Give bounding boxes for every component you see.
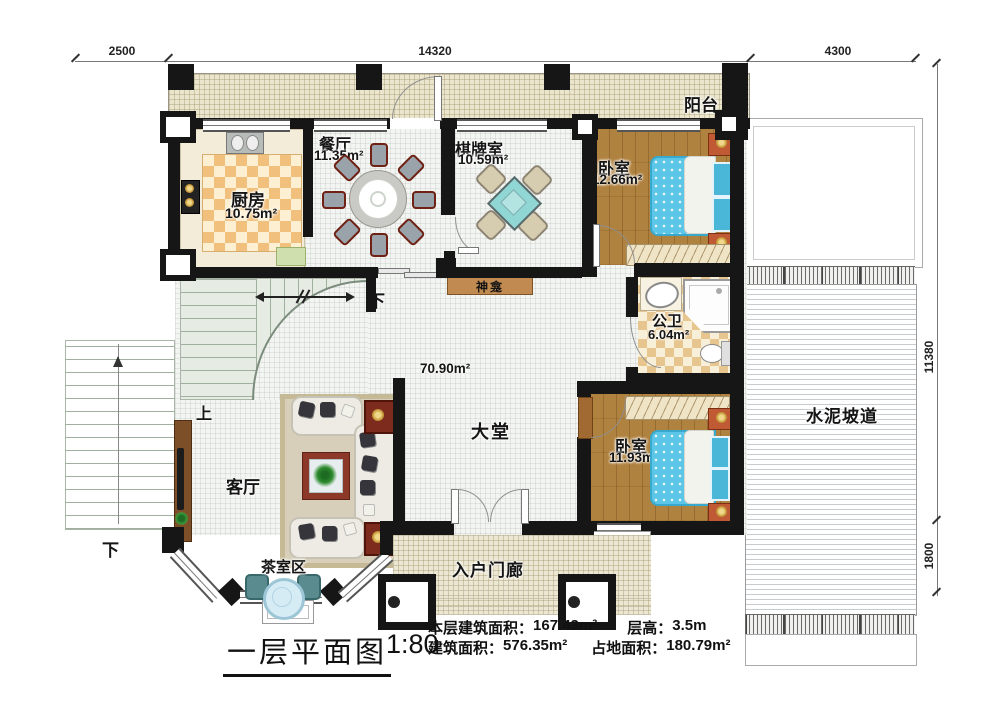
wall-exterior-right — [730, 118, 744, 533]
room-area-game-room: 10.59m² — [458, 152, 508, 167]
footer-stats-line2: 建筑面积： 576.35m² 占地面积： 180.79m² — [428, 637, 730, 658]
wall-bedroom-bottom-left — [577, 381, 591, 397]
exterior-stair-centerline — [118, 344, 119, 524]
bed-headboard — [712, 162, 732, 197]
fence-upper — [745, 266, 915, 286]
dining-chair — [370, 233, 388, 257]
wall-bedroom-bottom-left — [577, 437, 591, 533]
window-bedroom-top — [617, 119, 700, 132]
corner-column — [160, 111, 196, 143]
story-height-value: 3.5m — [672, 617, 706, 638]
window-dining — [314, 119, 387, 132]
bed-headboard — [710, 436, 730, 469]
stair-down-label-outer: 下 — [102, 536, 119, 561]
footprint-label: 占地面积： — [591, 637, 666, 658]
dining-chair — [370, 143, 388, 167]
wall-hall-living — [393, 378, 405, 521]
room-label-tea-area: 茶室区 — [261, 556, 306, 577]
exterior-stair — [65, 340, 175, 530]
tea-table-ring — [272, 587, 292, 607]
room-area-bedroom-top: 12.66m² — [592, 172, 642, 187]
dimension-top-right: 4300 — [806, 44, 870, 58]
door-leaf — [434, 76, 442, 121]
door-opening-balcony — [390, 118, 440, 129]
side-table-lamp — [372, 409, 384, 421]
door-leaf — [458, 247, 479, 254]
wall-stair-stub — [366, 278, 376, 312]
wall-gameroom-bottom — [441, 267, 582, 278]
corner-column — [572, 114, 598, 140]
dimension-line-top — [75, 61, 916, 62]
footer-stats-line1: 本层建筑面积： 167.43m² 层高： 3.5m — [428, 617, 706, 638]
dining-chair — [322, 191, 346, 209]
stair-arrow — [346, 292, 355, 302]
room-label-living-room: 客厅 — [226, 473, 260, 498]
sliding-door-leaf — [404, 272, 438, 278]
ramp-bottom-strip — [745, 634, 917, 666]
room-area-kitchen: 10.75m² — [225, 205, 277, 221]
porch-column-base — [568, 596, 580, 608]
spacer — [567, 637, 591, 658]
floor-area-value: 167.43m² — [533, 617, 597, 638]
sofa-cushion — [360, 480, 375, 495]
balcony-column — [544, 64, 570, 90]
gross-area-label: 建筑面积： — [428, 637, 503, 658]
gross-area-value: 576.35m² — [503, 637, 567, 658]
corner-column-notch — [722, 117, 736, 131]
bay-window-left — [170, 548, 223, 603]
cement-ramp — [745, 284, 917, 616]
nightstand-lamp — [716, 412, 727, 423]
balcony-column — [356, 64, 382, 90]
dimension-top-middle: 14320 — [400, 44, 470, 58]
window-kitchen — [203, 119, 290, 132]
stove-burner — [185, 184, 194, 193]
dimension-right-upper: 11380 — [922, 329, 936, 385]
entry-door-leaf — [521, 489, 529, 524]
wall-bedroom-bottom-top — [577, 381, 744, 394]
room-label-hall: 大堂 — [471, 418, 511, 444]
kitchen-sink-basin — [231, 135, 244, 151]
balcony-column — [168, 64, 194, 90]
door-leaf — [593, 224, 600, 267]
shrine-shelf: 神龛 — [447, 277, 533, 295]
floor-area-label: 本层建筑面积： — [428, 617, 533, 638]
plant-small — [175, 512, 188, 525]
wall-bedroom-bathroom — [634, 263, 744, 277]
fence-lower — [745, 614, 915, 636]
dimension-top-left: 2500 — [92, 44, 152, 58]
balcony-floor — [168, 73, 750, 120]
kitchen-counter-board — [276, 247, 306, 266]
plant — [313, 463, 337, 487]
spacer — [597, 617, 627, 638]
corner-column — [160, 249, 196, 281]
porch-column-base — [388, 596, 400, 608]
floor-plan-canvas: 2500 14320 4300 11380 1800 水泥坡道 阳台 厨房 10… — [0, 0, 1000, 706]
wall-kitchen-dining — [303, 129, 313, 237]
tv — [177, 448, 184, 510]
footprint-value: 180.79m² — [666, 637, 730, 658]
sofa-cushion — [322, 526, 337, 541]
interior-stair-steps — [181, 279, 257, 397]
room-label-cement-ramp: 水泥坡道 — [806, 402, 878, 427]
sofa-cushion — [361, 455, 378, 472]
plan-title: 一层平面图 — [223, 629, 391, 677]
stair-up-label: 上 — [196, 400, 212, 424]
nightstand-lamp — [716, 506, 727, 517]
sofa-cushion — [298, 401, 316, 419]
room-label-entry-porch: 入户门廊 — [452, 556, 524, 581]
bed-headboard — [710, 468, 730, 501]
window-game-room — [457, 119, 547, 132]
stair-arrow-up — [113, 356, 123, 367]
room-label-balcony: 阳台 — [684, 91, 718, 116]
stair-arrow — [255, 292, 264, 302]
wall-bathroom-left — [626, 277, 638, 317]
bed-headboard — [712, 197, 732, 232]
stove-burner — [185, 198, 194, 207]
dining-chair — [412, 191, 436, 209]
kitchen-sink-basin — [246, 135, 259, 151]
dimension-right-lower: 1800 — [922, 532, 936, 580]
sofa-cushion — [298, 523, 315, 540]
dining-table-center — [370, 191, 386, 207]
room-label-shrine: 神龛 — [476, 278, 504, 295]
shower-drain — [716, 288, 722, 294]
story-height-label: 层高： — [627, 617, 672, 638]
room-area-hall: 70.90m² — [420, 361, 470, 376]
side-terrace-inner-border — [753, 126, 915, 260]
sofa-pillow — [363, 504, 375, 516]
sofa-cushion — [320, 402, 335, 417]
wall-kitchen-bottom — [168, 267, 378, 278]
wall-dining-gameroom — [441, 129, 455, 215]
